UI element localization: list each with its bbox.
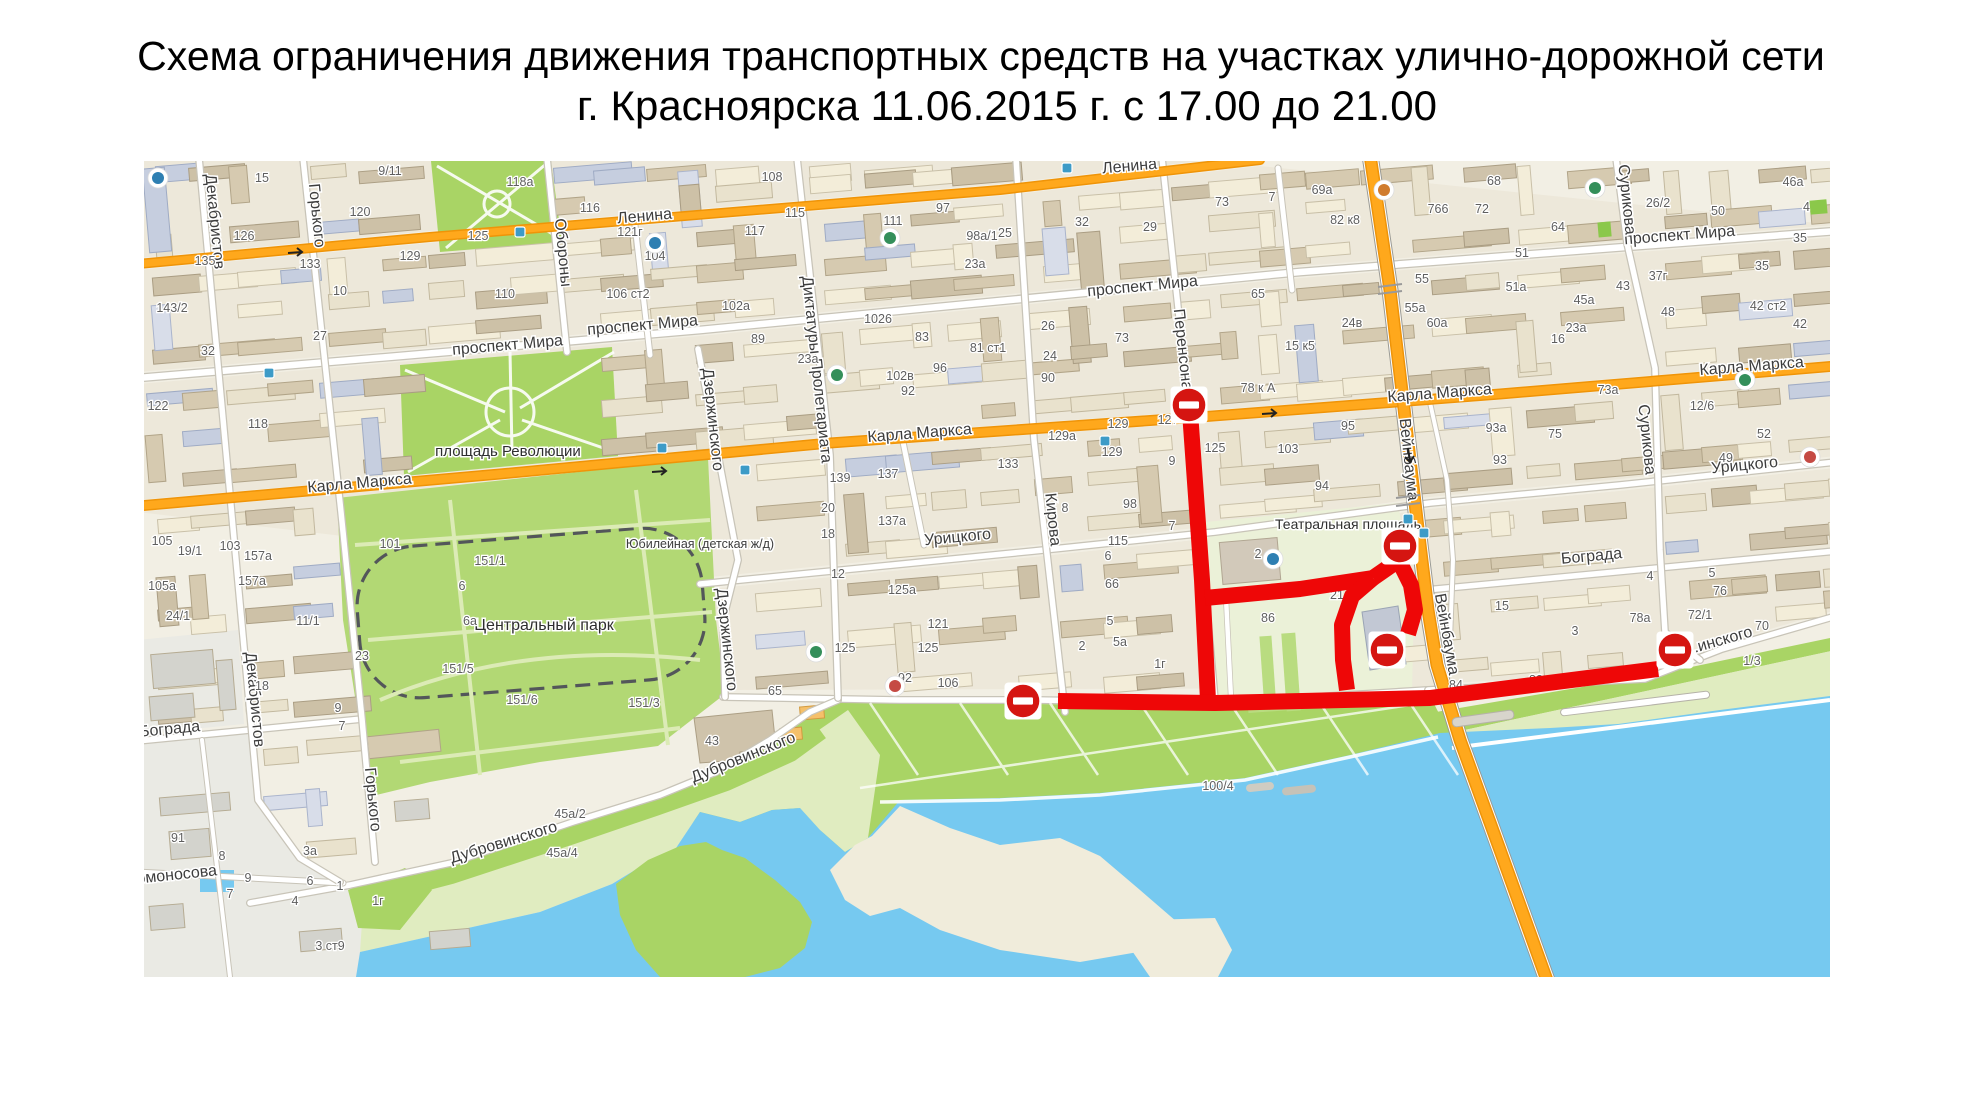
svg-text:1/3: 1/3 (1743, 654, 1760, 668)
svg-text:48: 48 (1661, 305, 1675, 319)
svg-text:92: 92 (901, 384, 915, 398)
svg-text:26/2: 26/2 (1646, 196, 1670, 210)
svg-text:91: 91 (171, 831, 185, 845)
svg-text:126: 126 (234, 229, 255, 243)
svg-text:46а: 46а (1783, 175, 1804, 189)
svg-text:60а: 60а (1427, 316, 1448, 330)
svg-text:105а: 105а (148, 579, 176, 593)
svg-text:4: 4 (292, 894, 299, 908)
svg-text:72: 72 (1475, 202, 1489, 216)
svg-text:2: 2 (1255, 547, 1262, 561)
svg-text:151/5: 151/5 (442, 662, 473, 676)
svg-text:135: 135 (195, 254, 216, 268)
svg-text:78а: 78а (1630, 611, 1651, 625)
svg-text:24в: 24в (1342, 316, 1363, 330)
svg-text:42: 42 (1793, 317, 1807, 331)
svg-text:43: 43 (705, 734, 719, 748)
svg-text:18: 18 (821, 527, 835, 541)
svg-text:3: 3 (1572, 624, 1579, 638)
svg-text:102в: 102в (886, 369, 914, 383)
svg-text:2: 2 (1079, 639, 1086, 653)
svg-text:1г: 1г (1154, 657, 1166, 671)
svg-text:125: 125 (918, 641, 939, 655)
svg-text:49: 49 (1719, 451, 1733, 465)
svg-text:102а: 102а (722, 299, 750, 313)
svg-text:Схема ограничения движения тра: Схема ограничения движения транспортных … (137, 33, 1825, 79)
svg-text:101: 101 (380, 537, 401, 551)
svg-text:118: 118 (248, 417, 268, 431)
svg-text:6: 6 (459, 579, 466, 593)
svg-text:35: 35 (1793, 231, 1807, 245)
svg-text:72/1: 72/1 (1688, 608, 1712, 622)
svg-text:15 к5: 15 к5 (1285, 339, 1315, 353)
svg-text:55: 55 (1415, 272, 1429, 286)
svg-text:7: 7 (227, 887, 234, 901)
svg-text:117: 117 (745, 224, 765, 238)
svg-text:Юбилейная (детская ж/д): Юбилейная (детская ж/д) (626, 537, 774, 551)
svg-text:100/4: 100/4 (1202, 779, 1233, 793)
svg-text:25: 25 (998, 226, 1012, 240)
svg-text:6: 6 (1105, 549, 1112, 563)
svg-text:108: 108 (762, 170, 783, 184)
svg-text:151/1: 151/1 (474, 554, 505, 568)
svg-text:98а/1: 98а/1 (966, 229, 997, 243)
svg-text:105: 105 (152, 534, 173, 548)
svg-text:Центральный парк: Центральный парк (474, 617, 615, 634)
svg-text:23а: 23а (798, 352, 819, 366)
svg-text:42 ст2: 42 ст2 (1750, 299, 1786, 313)
svg-text:3 ст9: 3 ст9 (315, 939, 344, 953)
svg-text:11/1: 11/1 (296, 614, 319, 628)
svg-text:50: 50 (1711, 204, 1725, 218)
svg-text:129: 129 (400, 249, 421, 263)
svg-text:3а: 3а (303, 844, 317, 858)
svg-text:121: 121 (928, 617, 949, 631)
svg-text:51: 51 (1515, 246, 1529, 260)
svg-text:9: 9 (245, 871, 252, 885)
svg-text:52: 52 (1757, 427, 1771, 441)
svg-text:12: 12 (831, 567, 845, 581)
svg-text:6а: 6а (463, 614, 477, 628)
svg-text:45а: 45а (1574, 293, 1595, 307)
svg-text:97: 97 (936, 201, 950, 215)
svg-text:23а: 23а (965, 257, 986, 271)
svg-text:4: 4 (1647, 569, 1654, 583)
svg-text:32: 32 (1075, 215, 1089, 229)
svg-text:139: 139 (830, 471, 851, 485)
svg-text:110: 110 (495, 287, 515, 301)
svg-text:133: 133 (998, 457, 1019, 471)
svg-text:94: 94 (1315, 479, 1329, 493)
svg-text:45а/4: 45а/4 (546, 846, 577, 860)
svg-text:157а: 157а (238, 574, 266, 588)
svg-text:115: 115 (1108, 534, 1128, 548)
svg-text:137: 137 (878, 467, 899, 481)
svg-text:96: 96 (933, 361, 947, 375)
svg-text:19/1: 19/1 (178, 544, 202, 558)
svg-text:7: 7 (1169, 519, 1176, 533)
svg-text:43: 43 (1616, 279, 1630, 293)
svg-text:73: 73 (1115, 331, 1129, 345)
svg-text:9: 9 (335, 701, 342, 715)
svg-text:5: 5 (1107, 614, 1114, 628)
svg-text:23: 23 (355, 649, 369, 663)
svg-text:45а/2: 45а/2 (554, 807, 585, 821)
svg-text:16: 16 (1551, 332, 1565, 346)
svg-text:157а: 157а (244, 549, 272, 563)
svg-text:73а: 73а (1598, 383, 1619, 397)
svg-text:64: 64 (1551, 220, 1565, 234)
svg-text:120: 120 (350, 205, 371, 219)
svg-text:75: 75 (1548, 427, 1562, 441)
svg-text:93: 93 (1493, 453, 1507, 467)
svg-text:12/6: 12/6 (1690, 399, 1714, 413)
svg-text:103: 103 (1278, 442, 1299, 456)
svg-text:65: 65 (1251, 287, 1265, 301)
svg-text:24/1: 24/1 (166, 609, 190, 623)
svg-text:116: 116 (580, 201, 600, 215)
svg-text:18: 18 (255, 679, 269, 693)
svg-text:32: 32 (201, 344, 215, 358)
svg-text:37г: 37г (1649, 269, 1668, 283)
svg-text:122: 122 (148, 399, 169, 413)
svg-text:115: 115 (785, 206, 805, 220)
svg-text:125: 125 (468, 229, 489, 243)
svg-text:133: 133 (300, 257, 321, 271)
svg-text:7: 7 (339, 719, 346, 733)
svg-text:151/3: 151/3 (628, 696, 659, 710)
svg-text:7: 7 (1269, 190, 1276, 204)
svg-text:23а: 23а (1566, 321, 1587, 335)
svg-text:65: 65 (768, 684, 782, 698)
svg-text:9/11: 9/11 (378, 164, 401, 178)
svg-text:24: 24 (1043, 349, 1057, 363)
svg-text:15: 15 (1495, 599, 1509, 613)
svg-text:9: 9 (1169, 454, 1176, 468)
svg-text:8: 8 (219, 849, 226, 863)
svg-text:69а: 69а (1312, 183, 1333, 197)
svg-text:5: 5 (1709, 566, 1716, 580)
svg-text:82 к8: 82 к8 (1330, 213, 1360, 227)
svg-text:55а: 55а (1405, 301, 1426, 315)
svg-text:125: 125 (835, 641, 856, 655)
svg-text:29: 29 (1143, 220, 1157, 234)
svg-text:8: 8 (1062, 501, 1069, 515)
svg-text:143/2: 143/2 (156, 301, 187, 315)
svg-text:95: 95 (1341, 419, 1355, 433)
svg-text:106 ст2: 106 ст2 (606, 287, 649, 301)
svg-text:5а: 5а (1113, 635, 1127, 649)
svg-text:площадь Революции: площадь Революции (435, 443, 581, 460)
svg-text:129: 129 (1108, 417, 1129, 431)
svg-text:129: 129 (1102, 445, 1123, 459)
svg-text:766: 766 (1428, 202, 1449, 216)
svg-text:83: 83 (915, 330, 929, 344)
svg-text:68: 68 (1487, 174, 1501, 188)
svg-text:76: 76 (1713, 584, 1727, 598)
svg-text:125: 125 (1205, 441, 1226, 455)
svg-text:20: 20 (821, 501, 835, 515)
svg-text:26: 26 (1041, 319, 1055, 333)
svg-text:121г: 121г (617, 225, 643, 239)
svg-text:151/6: 151/6 (506, 693, 537, 707)
svg-text:1г: 1г (372, 894, 384, 908)
svg-text:90: 90 (1041, 371, 1055, 385)
svg-text:66: 66 (1105, 577, 1119, 591)
svg-text:73: 73 (1215, 195, 1229, 209)
svg-text:10: 10 (333, 284, 347, 298)
svg-text:89: 89 (751, 332, 765, 346)
svg-text:27: 27 (313, 329, 327, 343)
svg-text:78 к А: 78 к А (1241, 381, 1276, 395)
svg-text:103: 103 (220, 539, 241, 553)
svg-text:125а: 125а (888, 583, 916, 597)
svg-text:35: 35 (1755, 259, 1769, 273)
svg-text:106: 106 (938, 676, 959, 690)
svg-text:93а: 93а (1486, 421, 1507, 435)
svg-text:6: 6 (307, 874, 314, 888)
svg-text:51а: 51а (1506, 280, 1527, 294)
svg-text:1: 1 (337, 879, 344, 893)
svg-text:1026: 1026 (864, 312, 892, 326)
svg-text:129а: 129а (1048, 429, 1076, 443)
svg-text:81 ст1: 81 ст1 (970, 341, 1006, 355)
svg-text:137а: 137а (878, 514, 906, 528)
svg-text:70: 70 (1755, 619, 1769, 633)
svg-text:98: 98 (1123, 497, 1137, 511)
svg-text:111: 111 (883, 214, 902, 228)
svg-text:15: 15 (255, 171, 269, 185)
svg-text:118а: 118а (507, 175, 534, 189)
svg-text:86: 86 (1261, 611, 1275, 625)
svg-text:г. Красноярска 11.06.2015 г. с: г. Красноярска 11.06.2015 г. с 17.00 до … (577, 82, 1437, 129)
